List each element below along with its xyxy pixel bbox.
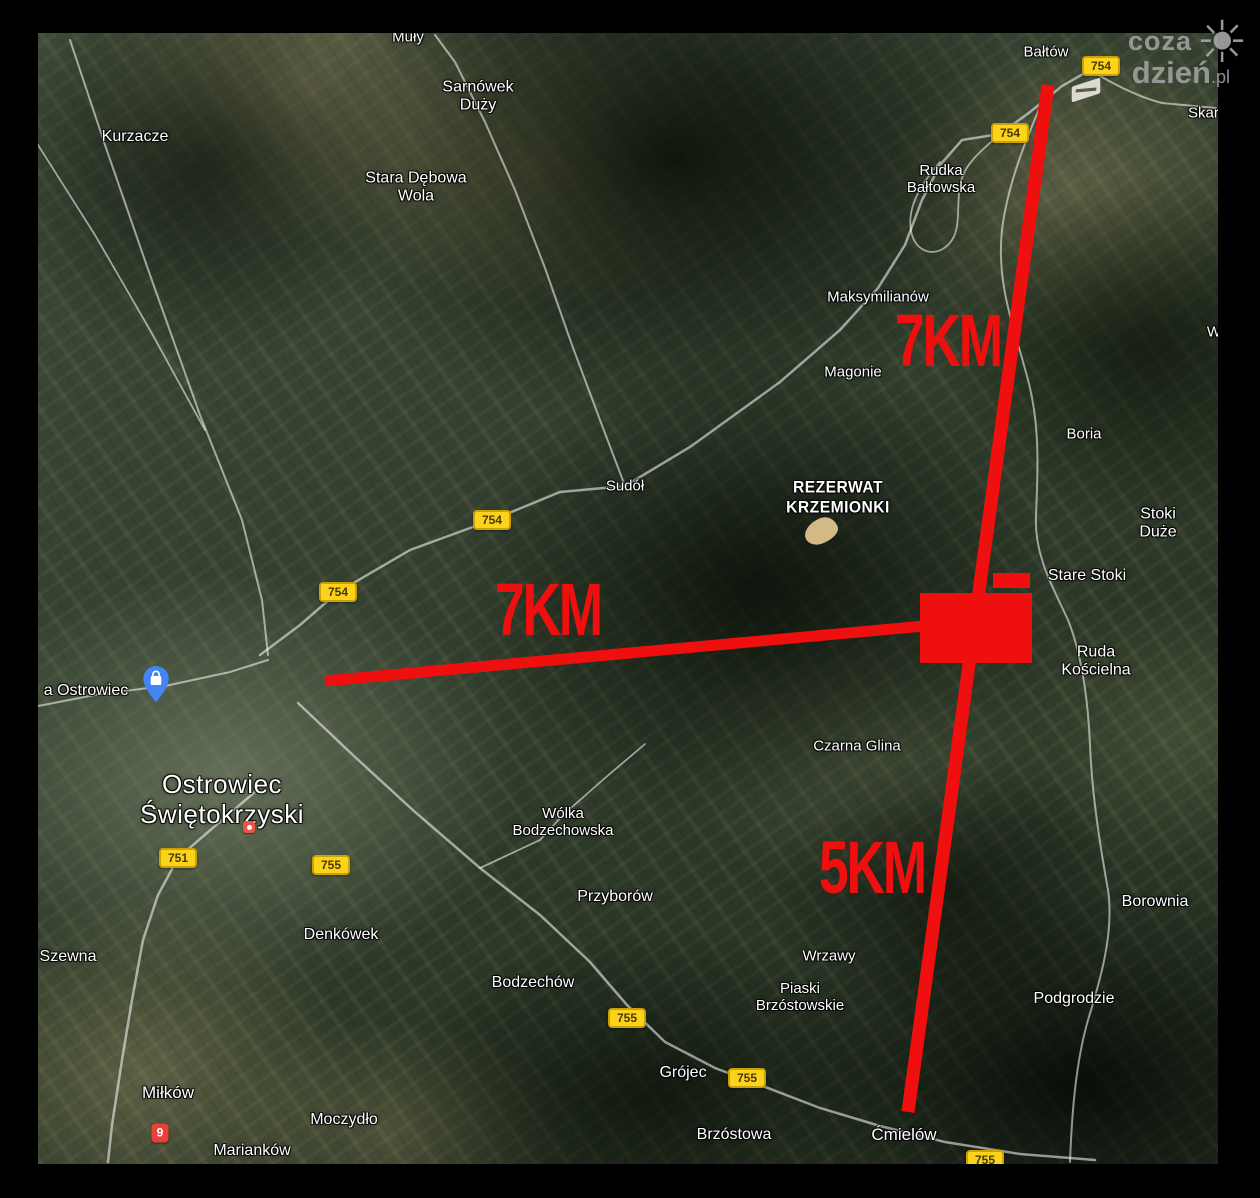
map-label: Sarnówek Duży — [442, 79, 513, 116]
map-label: Bałtów — [1023, 43, 1068, 60]
map-label: W — [1207, 323, 1218, 340]
map-label: Stara Dębowa Wola — [365, 170, 466, 207]
labels-layer: MułyKurzaczeSarnówek DużyStara Dębowa Wo… — [38, 33, 1218, 1164]
satellite-map[interactable]: MułyKurzaczeSarnówek DużyStara Dębowa Wo… — [38, 33, 1218, 1164]
map-label: Czarna Glina — [813, 737, 901, 754]
map-label: Wólka Bodzechowska — [513, 805, 614, 840]
map-label: Ćmielów — [871, 1125, 936, 1145]
map-label: Ruda Kościelna — [1061, 644, 1130, 681]
airstrip-icon — [1072, 77, 1101, 102]
map-label: Wrzawy — [802, 947, 855, 964]
map-label: Moczydło — [310, 1111, 378, 1129]
reserve-area-patch — [801, 513, 842, 549]
map-label: Rudka Bałtowska — [907, 162, 975, 197]
map-label: a Ostrowiec — [44, 682, 128, 700]
map-label: Stare Stoki — [1048, 567, 1126, 585]
road-shield-755: 755 — [966, 1150, 1004, 1164]
map-label: Brzóstowa — [697, 1126, 772, 1144]
road-shield-754: 754 — [991, 123, 1029, 143]
road-shield-755: 755 — [608, 1008, 646, 1028]
map-label: Sudół — [606, 477, 644, 494]
poi-marker[interactable] — [243, 821, 255, 833]
map-label: Muły — [392, 33, 424, 46]
road-shield-754: 754 — [319, 582, 357, 602]
map-label: Borownia — [1122, 893, 1189, 911]
distance-label: 7KM — [495, 573, 601, 647]
map-label: Miłków — [142, 1083, 194, 1103]
distance-label: 5KM — [819, 831, 925, 905]
map-label: Stoki Duże — [1128, 506, 1188, 543]
map-label: Ostrowiec Świętokrzyski — [140, 770, 304, 830]
map-label: Grójec — [659, 1064, 706, 1082]
screenshot-root: { "page": {"bg": "#000000", "map": {"lef… — [0, 0, 1260, 1198]
map-label: Kurzacze — [102, 128, 169, 146]
road-shield-755: 755 — [312, 855, 350, 875]
watermark-line1: coza — [1128, 26, 1192, 56]
cozadzien-watermark: coza ☀ dzień.pl — [1128, 28, 1244, 88]
red-marker-9[interactable]: 9 — [152, 1124, 169, 1143]
map-label: REZERWAT KRZEMIONKI — [786, 477, 890, 516]
shopping-place-pin[interactable] — [143, 666, 169, 702]
map-label: Przyborów — [577, 888, 653, 906]
road-shield-751: 751 — [159, 848, 197, 868]
map-label: Boria — [1066, 425, 1101, 442]
map-label: Skarbka — [1188, 104, 1218, 121]
map-label: Piaski Brzóstowskie — [756, 980, 844, 1015]
map-label: Marianków — [213, 1142, 290, 1160]
shopping-bag-icon — [143, 666, 169, 702]
road-shield-755: 755 — [728, 1068, 766, 1088]
road-shield-754: 754 — [1082, 56, 1120, 76]
road-shield-754: 754 — [473, 510, 511, 530]
map-label: Bodzechów — [492, 974, 575, 992]
map-label: Podgrodzie — [1034, 990, 1115, 1008]
sun-icon: ☀ — [1196, 14, 1248, 72]
map-label: Denkówek — [304, 926, 379, 944]
map-label: Szewna — [40, 948, 97, 966]
distance-label: 7KM — [895, 304, 1001, 378]
map-label: Magonie — [824, 363, 882, 380]
